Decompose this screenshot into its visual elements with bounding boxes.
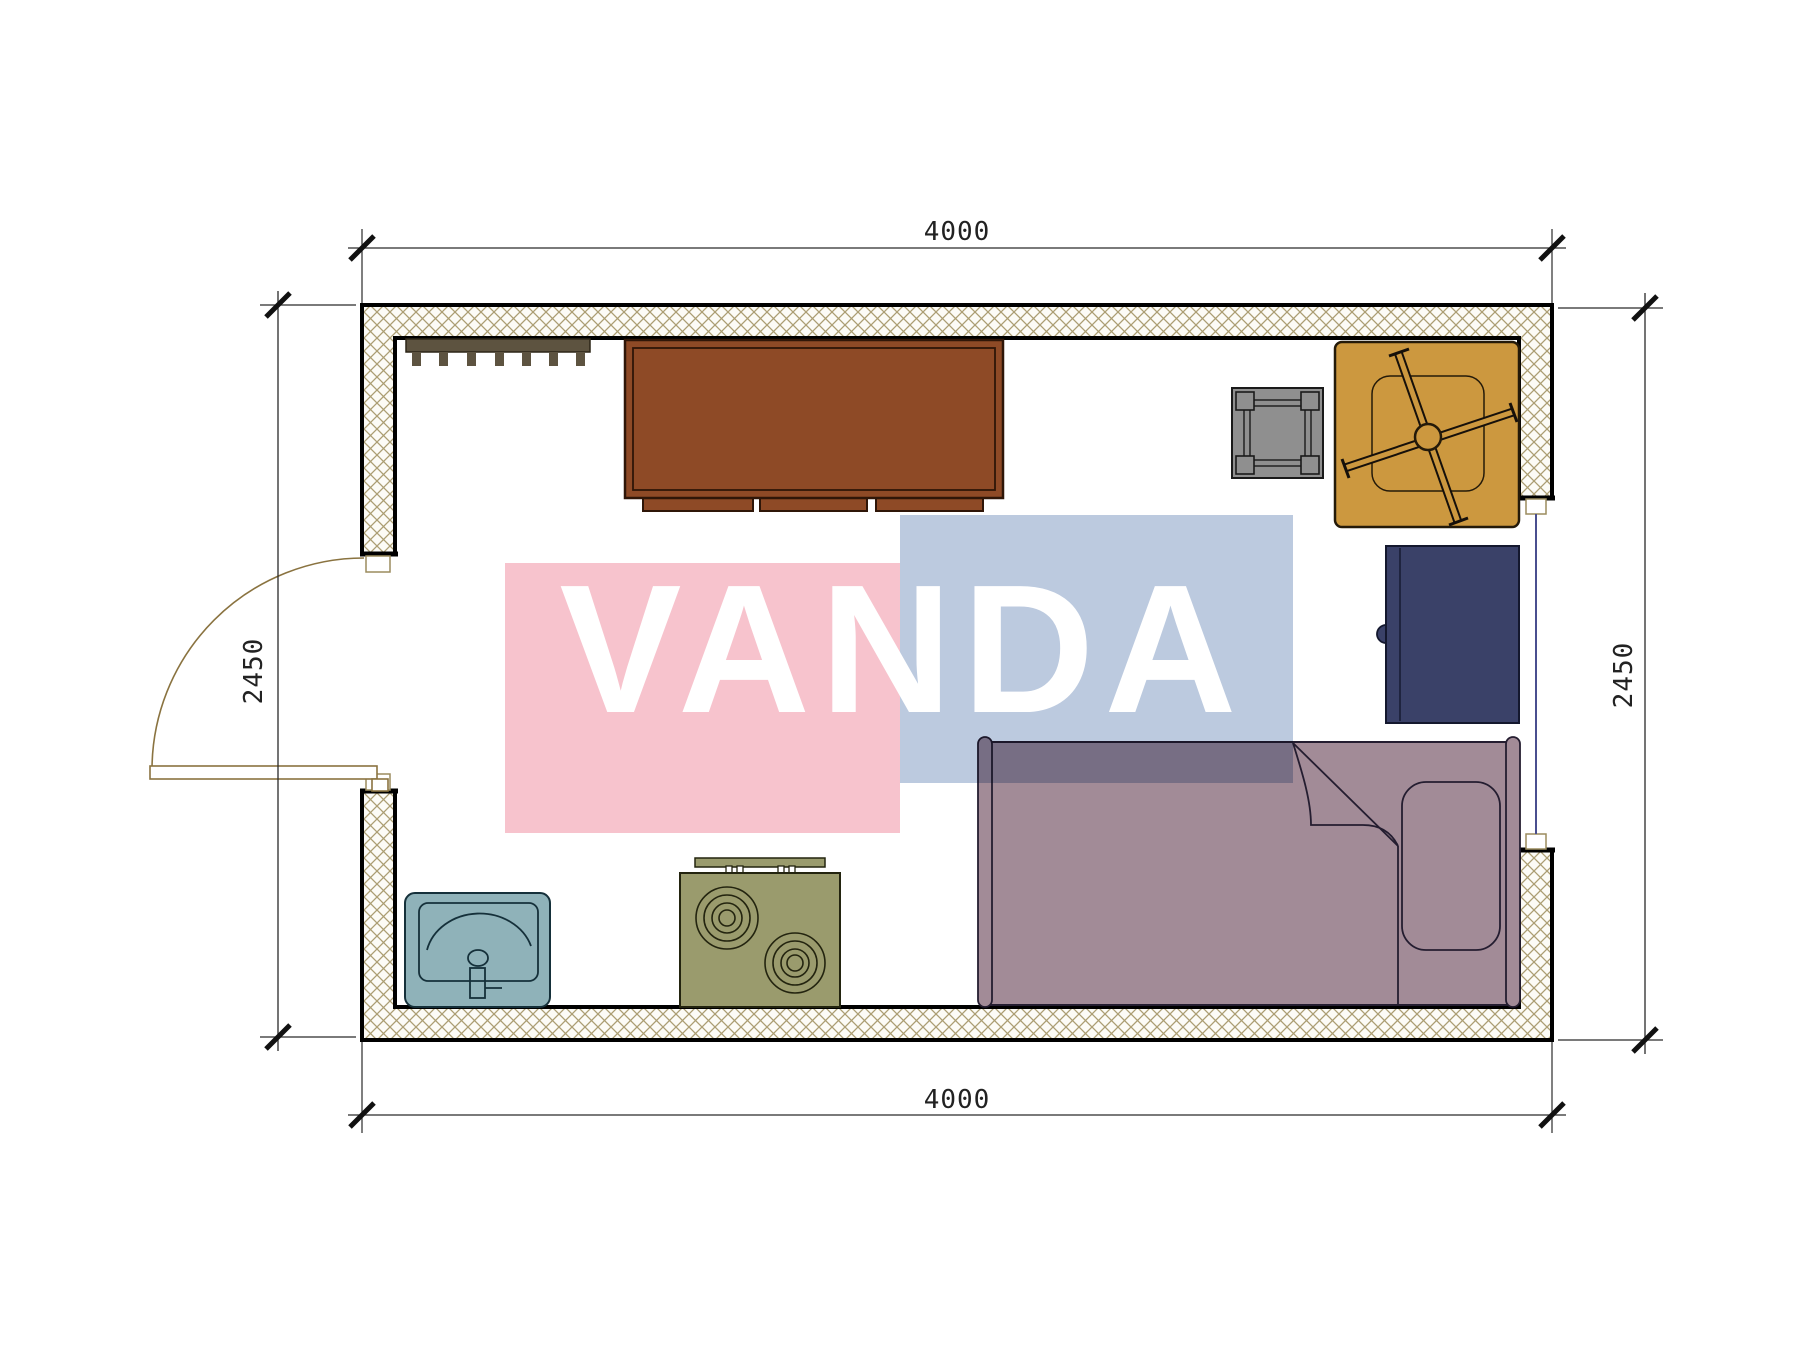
dimension-top: 4000 <box>348 217 1566 303</box>
entry-door <box>150 558 388 791</box>
coat-rack <box>406 339 590 366</box>
pedestal-table <box>1335 342 1519 527</box>
table-base-hub <box>1415 424 1441 450</box>
floor-plan-canvas: VANDA 4000 4000 2450 <box>0 0 1800 1350</box>
cabinet <box>625 340 1003 511</box>
dimension-bottom: 4000 <box>348 1042 1566 1133</box>
floor-plan-page: VANDA 4000 4000 2450 <box>0 0 1800 1350</box>
dimension-right: 2450 <box>1558 293 1663 1054</box>
dimension-left: 2450 <box>239 291 356 1051</box>
door-opening <box>357 556 400 789</box>
dim-label-right: 2450 <box>1609 642 1639 709</box>
stove <box>680 858 840 1007</box>
door-leaf <box>150 766 377 779</box>
stove-body <box>680 873 840 1007</box>
watermark-text: VANDA <box>559 546 1246 751</box>
window-jamb-bottom <box>1526 834 1546 849</box>
fridge-body <box>1386 546 1519 723</box>
window-jamb-top <box>1526 499 1546 514</box>
cabinet-body <box>625 340 1003 498</box>
dim-label-left: 2450 <box>239 638 269 705</box>
door-hinge-block <box>372 779 388 791</box>
door-jamb-top <box>366 556 390 572</box>
dim-label-top: 4000 <box>924 217 991 247</box>
mini-fridge <box>1377 546 1519 723</box>
stool <box>1232 388 1323 478</box>
stove-rail <box>695 858 825 867</box>
sink <box>405 893 550 1007</box>
coat-rack-bar <box>406 339 590 352</box>
dim-label-bottom: 4000 <box>924 1085 991 1115</box>
coat-rack-hooks <box>412 352 585 366</box>
bed-headboard <box>1506 737 1520 1007</box>
